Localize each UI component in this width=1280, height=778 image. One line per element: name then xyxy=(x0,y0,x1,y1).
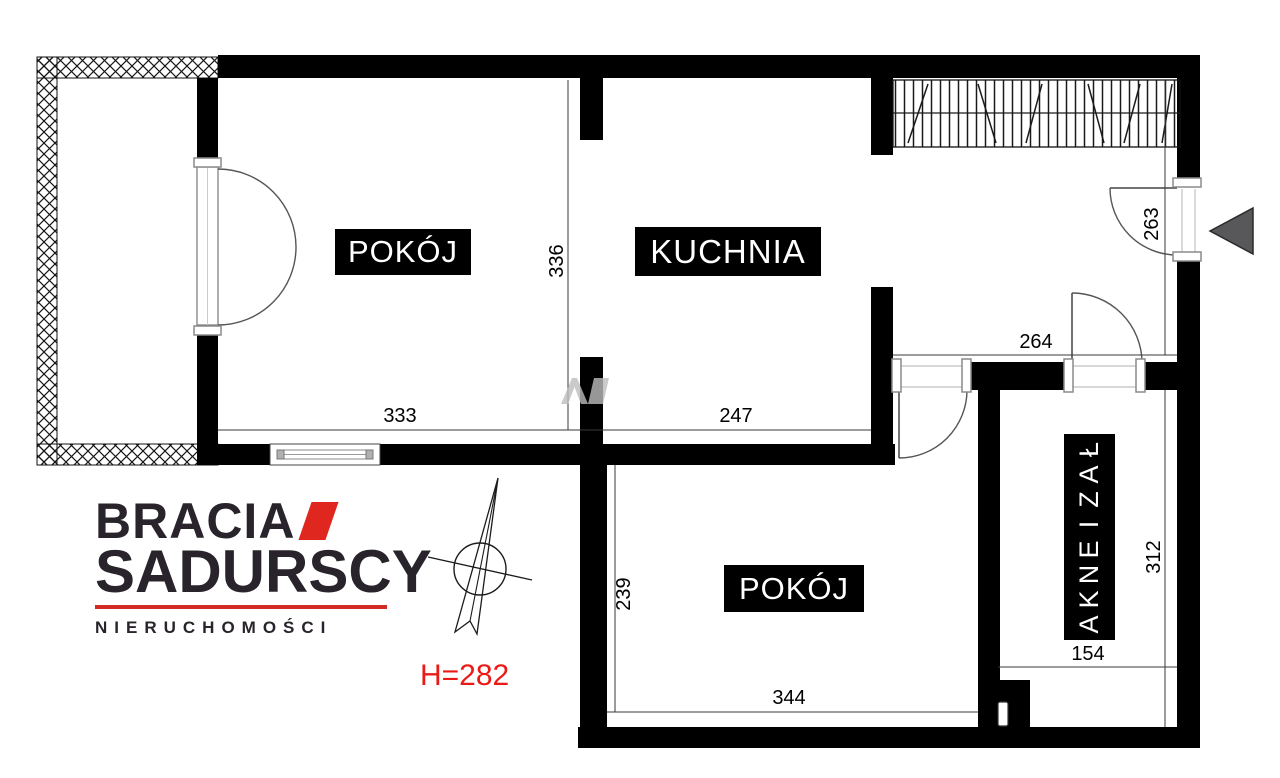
wall-hall-south-b xyxy=(966,362,1070,390)
dim-kitchen-width: 247 xyxy=(706,405,766,427)
bathroom-label: ŁAZIENKA xyxy=(1064,434,1115,640)
logo-tagline: NIERUCHOMOŚCI xyxy=(95,618,395,638)
dim-hall-width: 264 xyxy=(1006,331,1066,353)
wall-bathroom-west xyxy=(978,390,1000,727)
wall-kitchen-south xyxy=(580,444,895,465)
balcony-hatched-walls xyxy=(37,57,218,465)
ceiling-height-note: H=282 xyxy=(420,659,509,693)
dim-room2-width: 344 xyxy=(759,687,819,709)
window-symbol xyxy=(270,444,380,465)
dim-room2-depth: 239 xyxy=(613,564,635,624)
bathroom-door xyxy=(1064,293,1145,392)
wall-bottom xyxy=(578,727,1200,748)
wall-balcony-divider-bottom xyxy=(197,325,218,445)
logo-brand-line2: SADURSCY xyxy=(95,546,395,598)
room2-label: POKÓJ xyxy=(724,565,864,612)
wall-room1-kitchen-top-stub xyxy=(580,78,603,140)
dim-bathroom-width: 154 xyxy=(1058,643,1118,665)
wall-right-lower xyxy=(1177,254,1200,747)
room2-door xyxy=(892,359,971,458)
wall-room1-south-right xyxy=(373,444,580,465)
dim-bathroom-depth: 312 xyxy=(1143,527,1165,587)
dim-entry-depth: 263 xyxy=(1141,194,1163,254)
agency-logo: BRACIA SADURSCY NIERUCHOMOŚCI xyxy=(95,498,395,638)
wall-balcony-divider-top xyxy=(197,78,218,167)
wall-room1-south-left xyxy=(197,444,272,465)
wall-room2-west xyxy=(580,444,607,727)
wall-kitchen-hall-top xyxy=(871,55,893,155)
floorplan-page: POKÓJ KUCHNIA POKÓJ ŁAZIENKA 333 336 247… xyxy=(0,0,1280,778)
wall-kitchen-hall-bottom xyxy=(871,287,893,465)
dim-room1-depth: 336 xyxy=(546,231,568,291)
logo-divider xyxy=(95,605,387,609)
wall-hall-south-c xyxy=(1141,362,1200,390)
logo-red-mark-icon xyxy=(299,502,339,540)
balcony-door xyxy=(194,158,296,335)
entry-arrow-icon xyxy=(1210,208,1253,254)
wall-top xyxy=(218,55,1200,78)
shaft-slot xyxy=(998,702,1008,726)
room1-label: POKÓJ xyxy=(335,229,471,275)
compass-icon xyxy=(428,478,532,634)
walls xyxy=(197,55,1200,748)
wardrobe-symbol xyxy=(893,80,1180,147)
kitchen-label: KUCHNIA xyxy=(635,227,821,276)
dim-room1-width: 333 xyxy=(370,405,430,427)
